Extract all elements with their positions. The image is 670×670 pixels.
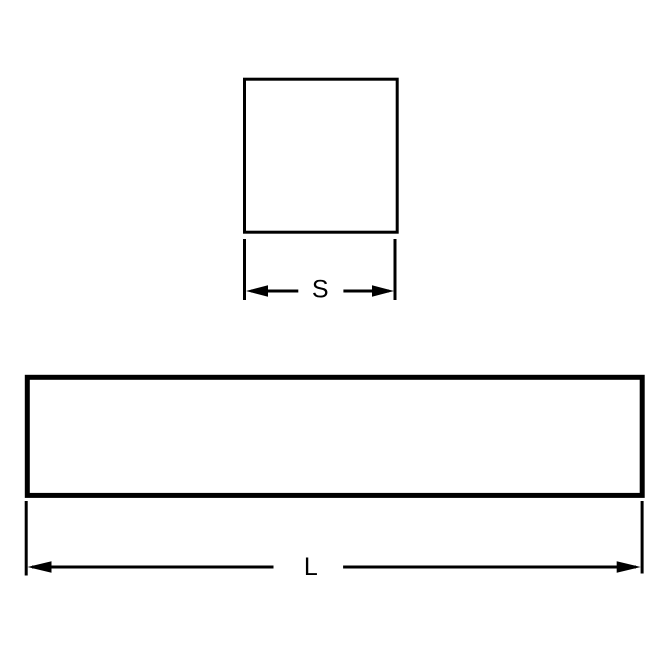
- svg-text:S: S: [312, 275, 329, 303]
- svg-text:L: L: [304, 553, 318, 581]
